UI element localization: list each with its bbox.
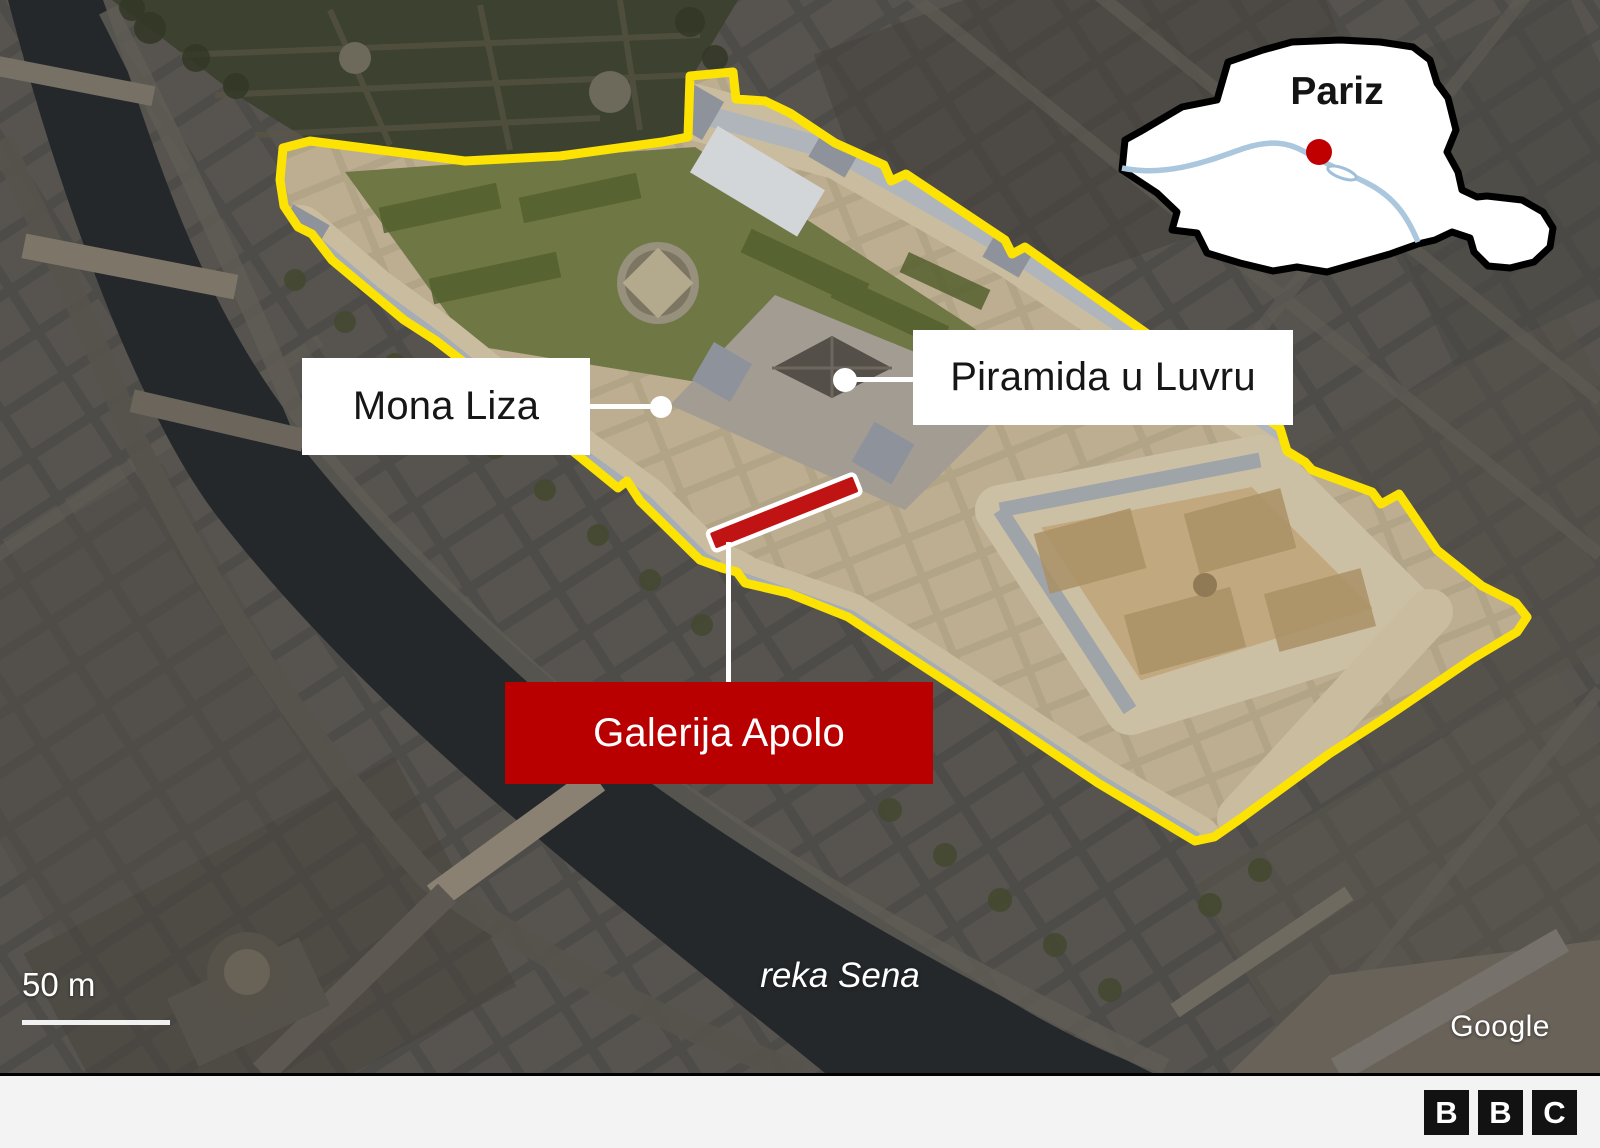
inset-location-marker <box>1306 139 1332 165</box>
aerial-photo <box>0 0 1600 1073</box>
apollo-gallery-label: Galerija Apolo <box>505 682 933 784</box>
imagery-credit: Google <box>1380 1010 1550 1044</box>
river-name-label: reka Sena <box>690 956 990 996</box>
scale-bar <box>22 1020 170 1025</box>
mona-liza-marker-dot <box>650 396 672 418</box>
louvre-map-graphic: Pariz Mona Liza Piramida u Luvru Galerij… <box>0 0 1600 1148</box>
bbc-logo-block: C <box>1532 1090 1577 1135</box>
pyramid-connector-line <box>852 377 916 382</box>
bbc-letter: C <box>1543 1095 1565 1131</box>
pyramid-label: Piramida u Luvru <box>913 330 1293 425</box>
bbc-logo-block: B <box>1424 1090 1469 1135</box>
pyramid-label-text: Piramida u Luvru <box>950 355 1256 400</box>
inset-city-label: Pariz <box>1252 70 1422 114</box>
bbc-letter: B <box>1435 1095 1457 1131</box>
bbc-logo-block: B <box>1478 1090 1523 1135</box>
mona-liza-connector-line <box>588 404 654 409</box>
bbc-logo: B B C <box>1424 1090 1577 1135</box>
pyramid-marker-dot <box>833 368 857 392</box>
mona-liza-label: Mona Liza <box>302 358 590 455</box>
scale-label: 50 m <box>22 966 95 1004</box>
footer-bar: B B C <box>0 1073 1600 1148</box>
bbc-letter: B <box>1489 1095 1511 1131</box>
mona-liza-label-text: Mona Liza <box>353 384 539 429</box>
apollo-gallery-label-text: Galerija Apolo <box>593 711 845 756</box>
apollo-connector-line <box>726 542 731 684</box>
